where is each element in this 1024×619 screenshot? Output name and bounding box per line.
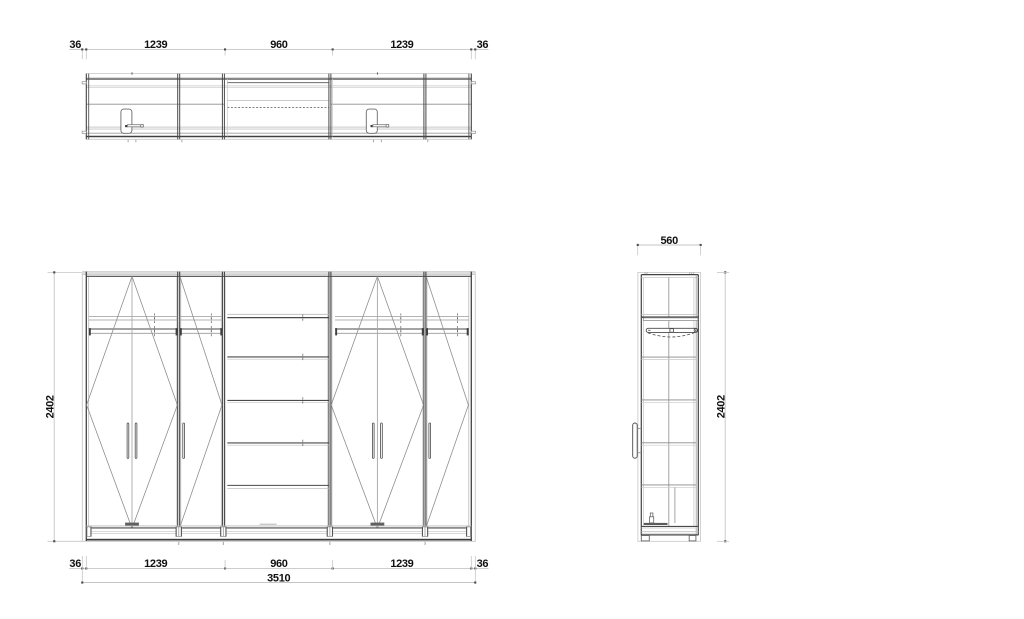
svg-text:960: 960 — [270, 558, 288, 570]
svg-text:36: 36 — [69, 39, 81, 51]
svg-text:560: 560 — [661, 235, 679, 247]
svg-text:960: 960 — [270, 39, 288, 51]
svg-text:1239: 1239 — [144, 558, 167, 570]
svg-text:2402: 2402 — [44, 395, 56, 418]
svg-text:36: 36 — [477, 558, 489, 570]
svg-text:36: 36 — [477, 39, 489, 51]
svg-text:36: 36 — [69, 558, 81, 570]
svg-text:1239: 1239 — [390, 558, 413, 570]
svg-text:1239: 1239 — [390, 39, 413, 51]
svg-text:1239: 1239 — [144, 39, 167, 51]
svg-text:3510: 3510 — [267, 572, 290, 584]
svg-text:2402: 2402 — [716, 395, 728, 418]
